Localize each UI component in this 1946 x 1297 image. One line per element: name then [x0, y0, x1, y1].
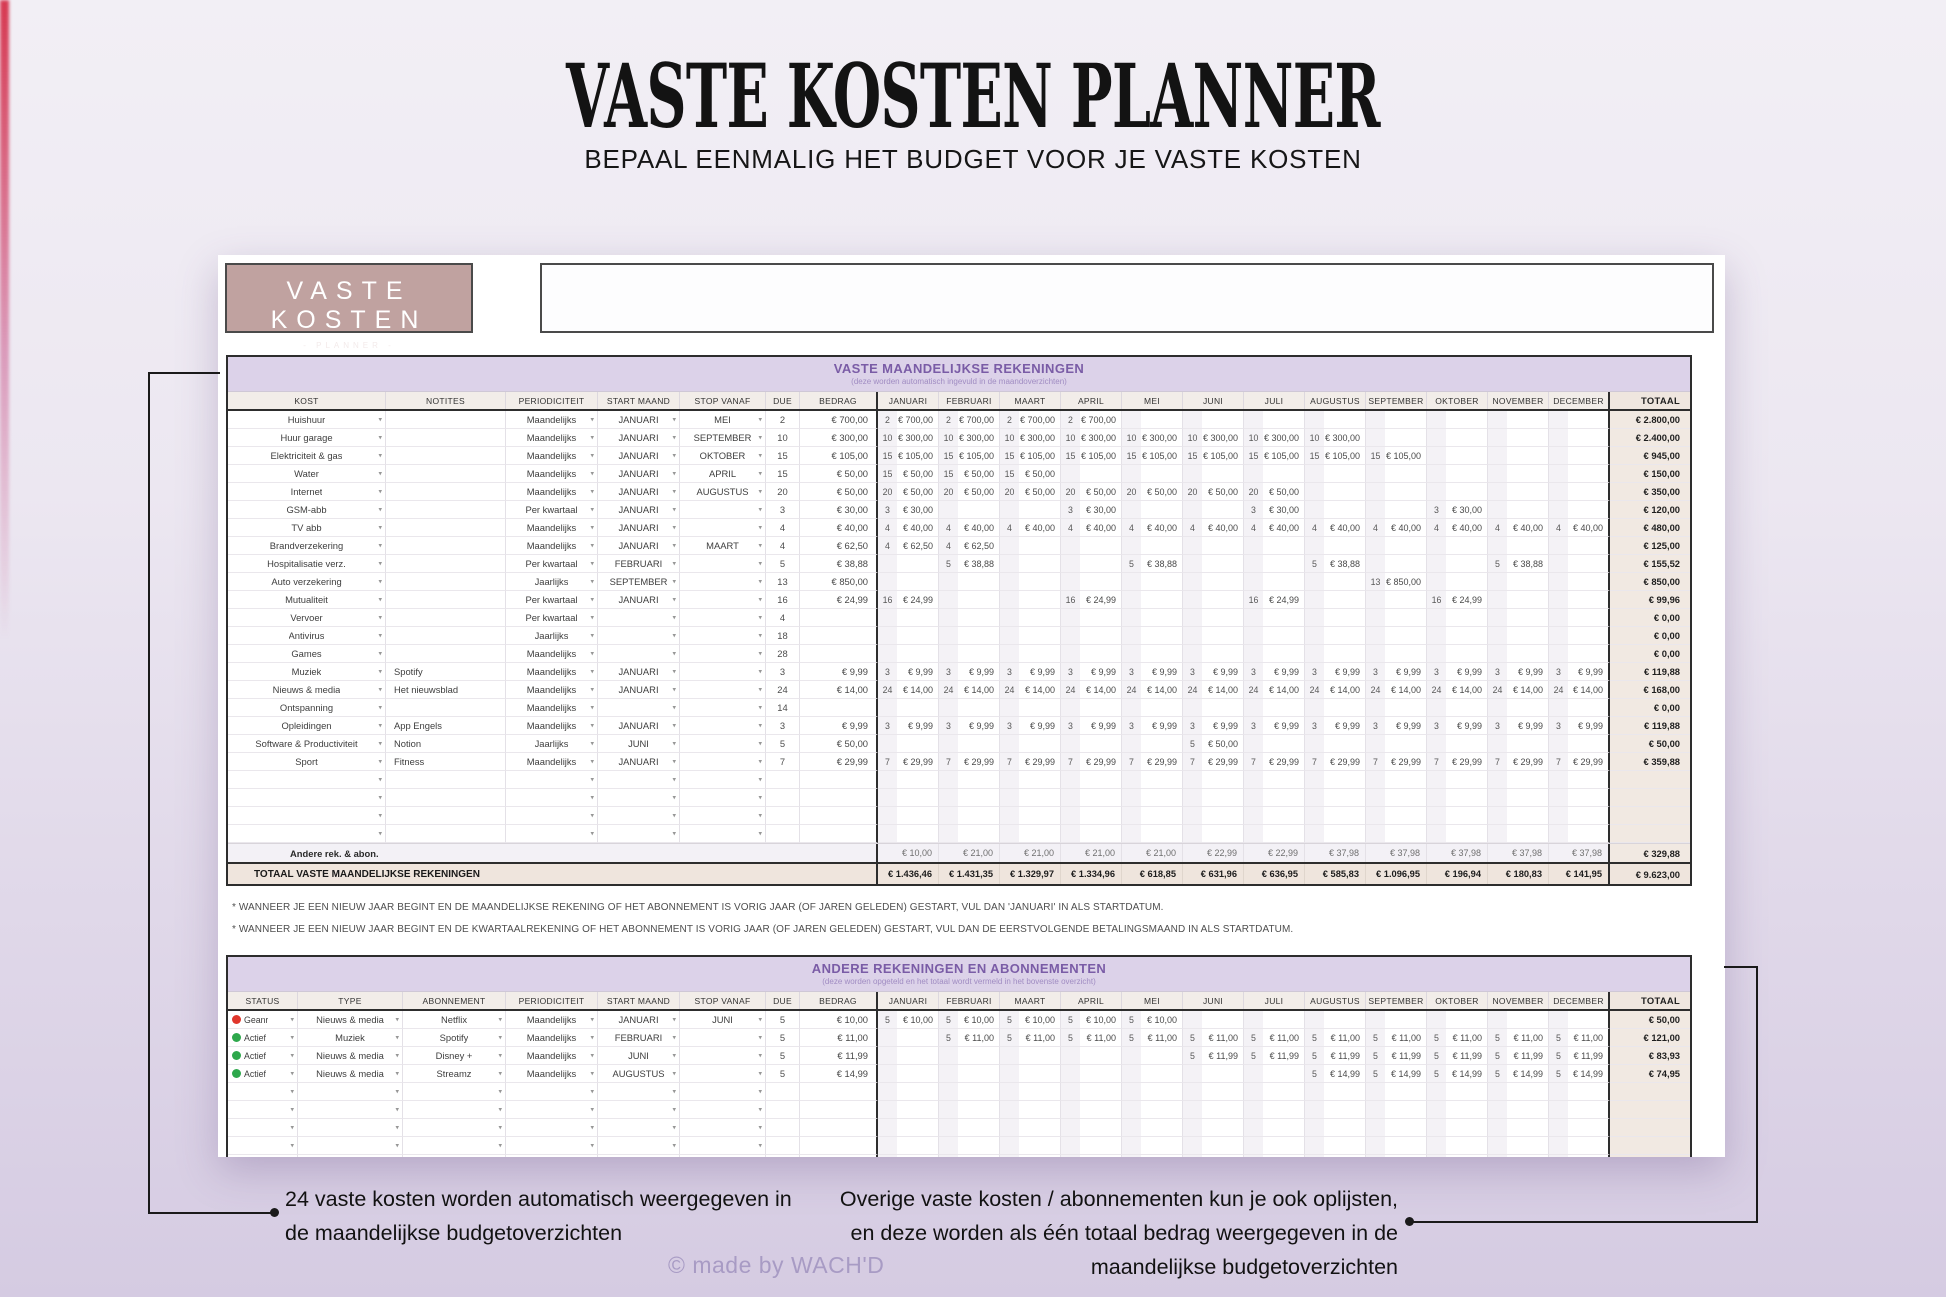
- cell-month-amount[interactable]: € 11,00: [958, 1029, 1000, 1047]
- cell-kost[interactable]: Vervoer▾: [228, 609, 386, 627]
- cell-month-amount[interactable]: € 9,99: [1324, 663, 1366, 681]
- cell-month-day[interactable]: [1061, 645, 1080, 663]
- cell-type[interactable]: Muziek▾: [298, 1029, 403, 1047]
- cell-kost[interactable]: Nieuws & media▾: [228, 681, 386, 699]
- dropdown-arrow-icon[interactable]: ▾: [395, 1070, 399, 1077]
- cell-status[interactable]: ▾: [228, 1137, 298, 1155]
- cell-month-amount[interactable]: € 40,00: [1507, 519, 1549, 537]
- dropdown-arrow-icon[interactable]: ▾: [378, 704, 382, 711]
- dropdown-arrow-icon[interactable]: ▾: [672, 506, 676, 513]
- cell-month-amount[interactable]: [1141, 591, 1183, 609]
- cell-month-amount[interactable]: € 300,00: [1141, 429, 1183, 447]
- dropdown-arrow-icon[interactable]: ▾: [590, 560, 594, 567]
- cell-month-day[interactable]: [878, 1047, 897, 1065]
- cell-month-day[interactable]: [1000, 1101, 1019, 1119]
- cell-month-amount[interactable]: [1446, 699, 1488, 717]
- cell-month-amount[interactable]: [1263, 1155, 1305, 1157]
- dropdown-arrow-icon[interactable]: ▾: [378, 488, 382, 495]
- cell-month-day[interactable]: [1366, 1119, 1385, 1137]
- cell-month-day[interactable]: 20: [878, 483, 897, 501]
- dropdown-arrow-icon[interactable]: ▾: [758, 452, 762, 459]
- cell-month-day[interactable]: 3: [1122, 663, 1141, 681]
- cell-start-maand[interactable]: FEBRUARI▾: [598, 1029, 680, 1047]
- dropdown-arrow-icon[interactable]: ▾: [672, 1106, 676, 1113]
- cell-month-amount[interactable]: € 14,00: [1507, 681, 1549, 699]
- cell-month-day[interactable]: 5: [1183, 1029, 1202, 1047]
- cell-month-day[interactable]: 5: [939, 1011, 958, 1029]
- cell-periodiciteit[interactable]: Per kwartaal▾: [506, 555, 598, 573]
- cell-start-maand[interactable]: ▾: [598, 609, 680, 627]
- cell-month-day[interactable]: 3: [1549, 717, 1568, 735]
- cell-month-day[interactable]: [1122, 1083, 1141, 1101]
- cell-month-amount[interactable]: [1385, 609, 1427, 627]
- cell-stop-vanaf[interactable]: ▾: [680, 1083, 766, 1101]
- cell-type[interactable]: Nieuws & media▾: [298, 1011, 403, 1029]
- cell-month-amount[interactable]: € 9,99: [1507, 717, 1549, 735]
- cell-month-day[interactable]: [1122, 789, 1141, 807]
- cell-due[interactable]: 20: [766, 483, 800, 501]
- cell-month-day[interactable]: 16: [1427, 591, 1446, 609]
- cell-month-amount[interactable]: [1019, 735, 1061, 753]
- cell-periodiciteit[interactable]: ▾: [506, 1155, 598, 1157]
- cell-month-amount[interactable]: € 29,99: [1324, 753, 1366, 771]
- dropdown-arrow-icon[interactable]: ▾: [498, 1070, 502, 1077]
- cell-month-day[interactable]: [878, 1083, 897, 1101]
- cell-due[interactable]: 5: [766, 1011, 800, 1029]
- dropdown-arrow-icon[interactable]: ▾: [378, 542, 382, 549]
- cell-month-amount[interactable]: [1568, 699, 1610, 717]
- cell-month-amount[interactable]: € 9,99: [897, 663, 939, 681]
- cell-month-amount[interactable]: [1446, 411, 1488, 429]
- cell-month-day[interactable]: [1366, 1011, 1385, 1029]
- cell-month-day[interactable]: [939, 735, 958, 753]
- cell-month-amount[interactable]: € 50,00: [1202, 735, 1244, 753]
- cell-month-day[interactable]: 5: [1305, 555, 1324, 573]
- cell-month-amount[interactable]: € 40,00: [1019, 519, 1061, 537]
- cell-month-day[interactable]: [1427, 609, 1446, 627]
- cell-type[interactable]: ▾: [298, 1101, 403, 1119]
- cell-month-day[interactable]: 20: [1061, 483, 1080, 501]
- cell-month-amount[interactable]: [1263, 465, 1305, 483]
- cell-kost[interactable]: Water▾: [228, 465, 386, 483]
- cell-month-amount[interactable]: [1019, 1101, 1061, 1119]
- cell-month-day[interactable]: [1366, 807, 1385, 825]
- cell-start-maand[interactable]: ▾: [598, 699, 680, 717]
- dropdown-arrow-icon[interactable]: ▾: [758, 812, 762, 819]
- cell-month-day[interactable]: 24: [1488, 681, 1507, 699]
- cell-month-day[interactable]: 24: [1000, 681, 1019, 699]
- cell-month-day[interactable]: [1427, 411, 1446, 429]
- cell-month-amount[interactable]: [1568, 1155, 1610, 1157]
- dropdown-arrow-icon[interactable]: ▾: [395, 1124, 399, 1131]
- cell-month-amount[interactable]: [897, 609, 939, 627]
- cell-month-amount[interactable]: [1507, 1119, 1549, 1137]
- cell-month-day[interactable]: [1488, 1101, 1507, 1119]
- dropdown-arrow-icon[interactable]: ▾: [378, 416, 382, 423]
- dropdown-arrow-icon[interactable]: ▾: [498, 1034, 502, 1041]
- cell-stop-vanaf[interactable]: ▾: [680, 699, 766, 717]
- cell-month-day[interactable]: [1549, 483, 1568, 501]
- cell-month-amount[interactable]: [1446, 825, 1488, 843]
- cell-month-day[interactable]: 5: [1183, 1047, 1202, 1065]
- cell-month-amount[interactable]: € 50,00: [1202, 483, 1244, 501]
- cell-month-amount[interactable]: € 9,99: [958, 717, 1000, 735]
- dropdown-arrow-icon[interactable]: ▾: [672, 1088, 676, 1095]
- dropdown-arrow-icon[interactable]: ▾: [758, 614, 762, 621]
- cell-month-amount[interactable]: € 105,00: [1324, 447, 1366, 465]
- cell-month-day[interactable]: [1183, 555, 1202, 573]
- dropdown-arrow-icon[interactable]: ▾: [758, 686, 762, 693]
- cell-month-day[interactable]: 3: [1183, 663, 1202, 681]
- cell-month-amount[interactable]: [1446, 537, 1488, 555]
- cell-month-day[interactable]: [878, 789, 897, 807]
- cell-month-amount[interactable]: [1324, 1011, 1366, 1029]
- cell-start-maand[interactable]: ▾: [598, 1101, 680, 1119]
- cell-month-day[interactable]: 15: [1305, 447, 1324, 465]
- dropdown-arrow-icon[interactable]: ▾: [590, 1052, 594, 1059]
- cell-month-day[interactable]: 5: [1122, 1011, 1141, 1029]
- cell-month-amount[interactable]: [958, 771, 1000, 789]
- cell-month-day[interactable]: 24: [1305, 681, 1324, 699]
- cell-month-day[interactable]: [1122, 699, 1141, 717]
- cell-month-day[interactable]: [1427, 1011, 1446, 1029]
- cell-due[interactable]: [766, 1083, 800, 1101]
- cell-month-day[interactable]: [1122, 1155, 1141, 1157]
- cell-start-maand[interactable]: ▾: [598, 789, 680, 807]
- cell-month-day[interactable]: 10: [939, 429, 958, 447]
- cell-month-amount[interactable]: [1446, 1011, 1488, 1029]
- cell-month-amount[interactable]: [1019, 645, 1061, 663]
- cell-month-amount[interactable]: [1141, 609, 1183, 627]
- cell-bedrag[interactable]: € 11,00: [800, 1029, 878, 1047]
- cell-month-day[interactable]: [1000, 1065, 1019, 1083]
- cell-month-day[interactable]: 24: [1427, 681, 1446, 699]
- cell-month-day[interactable]: [1122, 771, 1141, 789]
- cell-month-amount[interactable]: [1080, 789, 1122, 807]
- dropdown-arrow-icon[interactable]: ▾: [672, 812, 676, 819]
- cell-kost[interactable]: Mutualiteit▾: [228, 591, 386, 609]
- cell-month-day[interactable]: [1488, 627, 1507, 645]
- cell-month-day[interactable]: 15: [1061, 447, 1080, 465]
- cell-month-amount[interactable]: € 9,99: [1446, 663, 1488, 681]
- cell-month-amount[interactable]: [1324, 735, 1366, 753]
- cell-month-day[interactable]: [1061, 465, 1080, 483]
- cell-month-amount[interactable]: [1080, 807, 1122, 825]
- cell-month-amount[interactable]: [1385, 771, 1427, 789]
- cell-month-amount[interactable]: € 11,00: [1263, 1029, 1305, 1047]
- cell-month-amount[interactable]: € 29,99: [1202, 753, 1244, 771]
- cell-month-day[interactable]: [1244, 537, 1263, 555]
- cell-month-amount[interactable]: [1202, 1137, 1244, 1155]
- cell-month-day[interactable]: [878, 609, 897, 627]
- cell-month-amount[interactable]: [1080, 465, 1122, 483]
- cell-month-day[interactable]: 4: [1244, 519, 1263, 537]
- cell-bedrag[interactable]: € 11,99: [800, 1047, 878, 1065]
- cell-kost[interactable]: Muziek▾: [228, 663, 386, 681]
- cell-month-amount[interactable]: € 38,88: [1507, 555, 1549, 573]
- cell-kost[interactable]: ▾: [228, 807, 386, 825]
- cell-month-day[interactable]: [878, 771, 897, 789]
- cell-month-amount[interactable]: [1507, 483, 1549, 501]
- cell-month-amount[interactable]: € 9,99: [958, 663, 1000, 681]
- cell-month-day[interactable]: [1366, 771, 1385, 789]
- dropdown-arrow-icon[interactable]: ▾: [590, 1070, 594, 1077]
- cell-month-amount[interactable]: [1568, 483, 1610, 501]
- cell-month-day[interactable]: 5: [1366, 1047, 1385, 1065]
- cell-month-day[interactable]: 5: [1000, 1011, 1019, 1029]
- cell-month-amount[interactable]: € 24,99: [1080, 591, 1122, 609]
- cell-month-amount[interactable]: € 9,99: [1080, 663, 1122, 681]
- cell-due[interactable]: [766, 807, 800, 825]
- cell-month-day[interactable]: [1305, 609, 1324, 627]
- cell-month-day[interactable]: [1366, 699, 1385, 717]
- cell-bedrag[interactable]: [800, 645, 878, 663]
- cell-month-amount[interactable]: [1202, 1083, 1244, 1101]
- cell-month-day[interactable]: [1183, 1155, 1202, 1157]
- cell-month-day[interactable]: [1488, 789, 1507, 807]
- cell-month-amount[interactable]: [897, 1101, 939, 1119]
- cell-start-maand[interactable]: ▾: [598, 1137, 680, 1155]
- cell-month-amount[interactable]: [1568, 609, 1610, 627]
- cell-stop-vanaf[interactable]: ▾: [680, 1155, 766, 1157]
- cell-month-day[interactable]: [1488, 483, 1507, 501]
- cell-status[interactable]: ▾: [228, 1155, 298, 1157]
- cell-month-amount[interactable]: [958, 1119, 1000, 1137]
- cell-month-amount[interactable]: [1263, 735, 1305, 753]
- cell-month-amount[interactable]: € 105,00: [1385, 447, 1427, 465]
- cell-month-amount[interactable]: [1141, 789, 1183, 807]
- dropdown-arrow-icon[interactable]: ▾: [590, 686, 594, 693]
- cell-month-day[interactable]: [1244, 789, 1263, 807]
- cell-month-amount[interactable]: € 29,99: [897, 753, 939, 771]
- cell-month-amount[interactable]: [1202, 627, 1244, 645]
- cell-month-day[interactable]: [1427, 825, 1446, 843]
- cell-bedrag[interactable]: € 9,99: [800, 717, 878, 735]
- cell-notities[interactable]: [386, 501, 506, 519]
- cell-month-day[interactable]: [1305, 537, 1324, 555]
- cell-stop-vanaf[interactable]: ▾: [680, 627, 766, 645]
- cell-due[interactable]: [766, 789, 800, 807]
- cell-month-amount[interactable]: [1324, 645, 1366, 663]
- cell-month-amount[interactable]: [1385, 645, 1427, 663]
- cell-month-amount[interactable]: € 9,99: [1507, 663, 1549, 681]
- cell-month-amount[interactable]: [958, 789, 1000, 807]
- dropdown-arrow-icon[interactable]: ▾: [590, 452, 594, 459]
- cell-month-day[interactable]: [1061, 1101, 1080, 1119]
- cell-month-amount[interactable]: [1446, 555, 1488, 573]
- cell-month-day[interactable]: 3: [1305, 717, 1324, 735]
- cell-notities[interactable]: [386, 807, 506, 825]
- cell-month-amount[interactable]: [958, 501, 1000, 519]
- cell-month-amount[interactable]: [1324, 573, 1366, 591]
- cell-notities[interactable]: [386, 447, 506, 465]
- cell-month-day[interactable]: 5: [1244, 1047, 1263, 1065]
- cell-stop-vanaf[interactable]: SEPTEMBER▾: [680, 429, 766, 447]
- cell-month-day[interactable]: 4: [1488, 519, 1507, 537]
- cell-month-amount[interactable]: [958, 609, 1000, 627]
- dropdown-arrow-icon[interactable]: ▾: [672, 758, 676, 765]
- cell-month-amount[interactable]: [1080, 1101, 1122, 1119]
- cell-month-amount[interactable]: [1202, 1119, 1244, 1137]
- cell-month-day[interactable]: 5: [1305, 1047, 1324, 1065]
- cell-month-day[interactable]: 24: [878, 681, 897, 699]
- cell-month-day[interactable]: [1366, 1083, 1385, 1101]
- dropdown-arrow-icon[interactable]: ▾: [590, 722, 594, 729]
- cell-stop-vanaf[interactable]: JUNI▾: [680, 1011, 766, 1029]
- cell-kost[interactable]: Brandverzekering▾: [228, 537, 386, 555]
- dropdown-arrow-icon[interactable]: ▾: [672, 1070, 676, 1077]
- cell-due[interactable]: 24: [766, 681, 800, 699]
- cell-month-day[interactable]: [878, 699, 897, 717]
- cell-kost[interactable]: Hospitalisatie verz.▾: [228, 555, 386, 573]
- cell-month-day[interactable]: [939, 1065, 958, 1083]
- cell-bedrag[interactable]: € 40,00: [800, 519, 878, 537]
- dropdown-arrow-icon[interactable]: ▾: [378, 776, 382, 783]
- cell-type[interactable]: ▾: [298, 1119, 403, 1137]
- dropdown-arrow-icon[interactable]: ▾: [590, 794, 594, 801]
- dropdown-arrow-icon[interactable]: ▾: [498, 1088, 502, 1095]
- dropdown-arrow-icon[interactable]: ▾: [758, 776, 762, 783]
- cell-month-day[interactable]: [1183, 411, 1202, 429]
- cell-periodiciteit[interactable]: Maandelijks▾: [506, 411, 598, 429]
- cell-month-day[interactable]: [1427, 465, 1446, 483]
- cell-bedrag[interactable]: € 14,00: [800, 681, 878, 699]
- dropdown-arrow-icon[interactable]: ▾: [290, 1016, 294, 1023]
- cell-month-amount[interactable]: [958, 573, 1000, 591]
- cell-kost[interactable]: Ontspanning▾: [228, 699, 386, 717]
- cell-month-day[interactable]: 7: [1488, 753, 1507, 771]
- cell-month-amount[interactable]: € 29,99: [1385, 753, 1427, 771]
- dropdown-arrow-icon[interactable]: ▾: [395, 1034, 399, 1041]
- cell-month-amount[interactable]: [1019, 789, 1061, 807]
- cell-month-amount[interactable]: [1019, 591, 1061, 609]
- cell-month-amount[interactable]: € 50,00: [897, 465, 939, 483]
- dropdown-arrow-icon[interactable]: ▾: [290, 1088, 294, 1095]
- cell-kost[interactable]: Games▾: [228, 645, 386, 663]
- cell-month-day[interactable]: 3: [1488, 663, 1507, 681]
- cell-month-amount[interactable]: € 300,00: [1019, 429, 1061, 447]
- cell-due[interactable]: 2: [766, 411, 800, 429]
- cell-month-amount[interactable]: [1141, 1137, 1183, 1155]
- cell-month-day[interactable]: [1488, 699, 1507, 717]
- cell-month-day[interactable]: [939, 645, 958, 663]
- cell-month-amount[interactable]: [1385, 1155, 1427, 1157]
- cell-periodiciteit[interactable]: Jaarlijks▾: [506, 627, 598, 645]
- cell-month-day[interactable]: [1061, 1047, 1080, 1065]
- cell-month-amount[interactable]: € 62,50: [897, 537, 939, 555]
- dropdown-arrow-icon[interactable]: ▾: [378, 434, 382, 441]
- cell-month-amount[interactable]: € 40,00: [1385, 519, 1427, 537]
- cell-notities[interactable]: [386, 465, 506, 483]
- cell-month-amount[interactable]: [1507, 825, 1549, 843]
- cell-periodiciteit[interactable]: Maandelijks▾: [506, 681, 598, 699]
- cell-month-amount[interactable]: [1324, 1119, 1366, 1137]
- cell-month-day[interactable]: [1244, 699, 1263, 717]
- cell-start-maand[interactable]: ▾: [598, 1119, 680, 1137]
- cell-start-maand[interactable]: JANUARI▾: [598, 591, 680, 609]
- cell-month-day[interactable]: [1549, 555, 1568, 573]
- cell-month-day[interactable]: [1244, 1137, 1263, 1155]
- cell-month-day[interactable]: [1244, 411, 1263, 429]
- cell-month-day[interactable]: [939, 789, 958, 807]
- cell-month-day[interactable]: 4: [939, 519, 958, 537]
- cell-month-amount[interactable]: [1141, 465, 1183, 483]
- cell-periodiciteit[interactable]: Maandelijks▾: [506, 1011, 598, 1029]
- cell-month-amount[interactable]: [1568, 1119, 1610, 1137]
- cell-month-amount[interactable]: [1263, 537, 1305, 555]
- cell-month-amount[interactable]: € 11,00: [1385, 1029, 1427, 1047]
- cell-stop-vanaf[interactable]: ▾: [680, 609, 766, 627]
- dropdown-arrow-icon[interactable]: ▾: [378, 470, 382, 477]
- cell-month-amount[interactable]: [1568, 789, 1610, 807]
- cell-bedrag[interactable]: € 14,99: [800, 1065, 878, 1083]
- dropdown-arrow-icon[interactable]: ▾: [672, 1052, 676, 1059]
- cell-month-amount[interactable]: € 30,00: [1263, 501, 1305, 519]
- cell-month-day[interactable]: [878, 1065, 897, 1083]
- cell-month-day[interactable]: [939, 771, 958, 789]
- cell-kost[interactable]: Huishuur▾: [228, 411, 386, 429]
- dropdown-arrow-icon[interactable]: ▾: [672, 542, 676, 549]
- cell-month-day[interactable]: [1488, 429, 1507, 447]
- cell-month-day[interactable]: [1122, 627, 1141, 645]
- cell-month-amount[interactable]: € 11,99: [1568, 1047, 1610, 1065]
- cell-month-amount[interactable]: [1385, 789, 1427, 807]
- cell-month-amount[interactable]: [1019, 699, 1061, 717]
- dropdown-arrow-icon[interactable]: ▾: [395, 1052, 399, 1059]
- cell-stop-vanaf[interactable]: ▾: [680, 1029, 766, 1047]
- cell-month-amount[interactable]: [1324, 465, 1366, 483]
- header-input-box[interactable]: [540, 263, 1714, 333]
- cell-kost[interactable]: TV abb▾: [228, 519, 386, 537]
- cell-month-day[interactable]: [1427, 1101, 1446, 1119]
- cell-stop-vanaf[interactable]: AUGUSTUS▾: [680, 483, 766, 501]
- cell-bedrag[interactable]: € 38,88: [800, 555, 878, 573]
- cell-bedrag[interactable]: € 50,00: [800, 735, 878, 753]
- cell-month-day[interactable]: [1000, 555, 1019, 573]
- cell-month-day[interactable]: [1183, 591, 1202, 609]
- cell-month-day[interactable]: [1183, 825, 1202, 843]
- cell-month-amount[interactable]: [1263, 807, 1305, 825]
- cell-month-amount[interactable]: [1568, 627, 1610, 645]
- cell-month-amount[interactable]: [1446, 1083, 1488, 1101]
- cell-month-amount[interactable]: [1568, 1137, 1610, 1155]
- cell-month-day[interactable]: 5: [1427, 1065, 1446, 1083]
- cell-notities[interactable]: [386, 609, 506, 627]
- cell-month-amount[interactable]: [1507, 789, 1549, 807]
- cell-month-amount[interactable]: [1263, 627, 1305, 645]
- cell-month-amount[interactable]: € 11,99: [1446, 1047, 1488, 1065]
- cell-due[interactable]: 16: [766, 591, 800, 609]
- cell-kost[interactable]: Sport▾: [228, 753, 386, 771]
- cell-month-amount[interactable]: [1446, 609, 1488, 627]
- cell-month-day[interactable]: 5: [1183, 735, 1202, 753]
- cell-month-day[interactable]: [1000, 699, 1019, 717]
- cell-month-day[interactable]: [1122, 1119, 1141, 1137]
- cell-periodiciteit[interactable]: ▾: [506, 1083, 598, 1101]
- cell-month-amount[interactable]: [1141, 1047, 1183, 1065]
- cell-month-day[interactable]: [1549, 807, 1568, 825]
- cell-due[interactable]: [766, 1119, 800, 1137]
- cell-month-day[interactable]: 3: [939, 717, 958, 735]
- cell-month-amount[interactable]: € 11,99: [1507, 1047, 1549, 1065]
- cell-month-amount[interactable]: [1568, 573, 1610, 591]
- dropdown-arrow-icon[interactable]: ▾: [758, 1142, 762, 1149]
- cell-month-amount[interactable]: [1446, 789, 1488, 807]
- cell-month-day[interactable]: 5: [1488, 1065, 1507, 1083]
- cell-month-day[interactable]: [1000, 1155, 1019, 1157]
- cell-month-day[interactable]: [1061, 573, 1080, 591]
- cell-bedrag[interactable]: € 300,00: [800, 429, 878, 447]
